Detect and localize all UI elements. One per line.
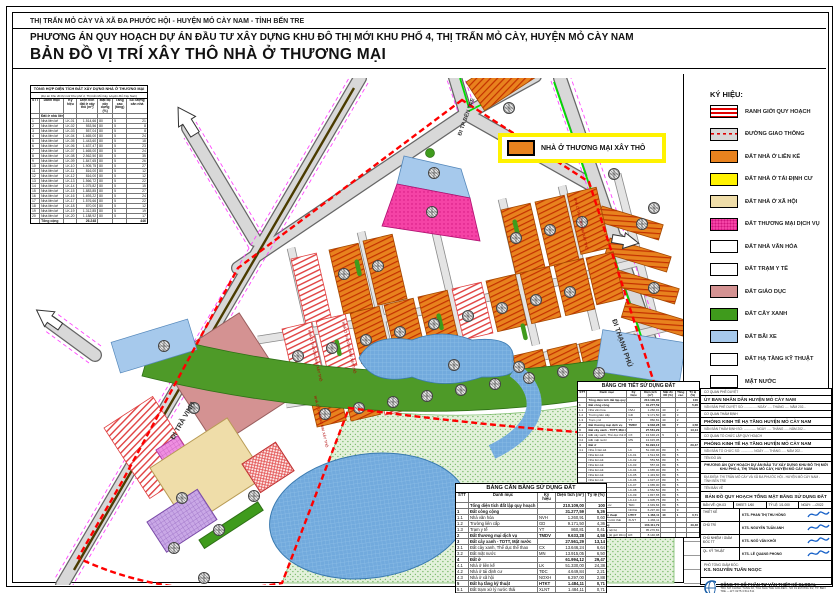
table-row: Tổng diện tích đất lập quy hoạch210.109,…: [456, 502, 606, 508]
approve-doc-line: VĂN BẢN PHÊ DUYỆT SỐ: .............. NGÀ…: [701, 404, 831, 411]
appraise-agency: PHÒNG KINH TẾ HẠ TẦNG HUYỆN MỎ CÀY NAM: [701, 418, 831, 426]
legend-item-giaoduc: ĐẤT GIÁO DỤC: [710, 285, 828, 298]
meta-date: NGÀY: ..../2022: [798, 502, 831, 508]
table-row: Nhà liên kếLK-011.514,66805: [578, 452, 699, 457]
table-row: 2Nhà liên kếLK-02553,568058: [31, 123, 147, 128]
table-row: 3Đất cây xanh - TDTT, Mặt nước27.561,291…: [578, 427, 699, 432]
project-label: TÊN ĐỒ ÁN: [701, 455, 831, 462]
table-row: STTDanh mụcKý hiệuDiện tích (m²)Mật độ X…: [578, 391, 699, 397]
org-doc-line: VĂN BẢN TỔ CHỨC SỐ: .............. NGÀY …: [701, 448, 831, 455]
table-row: 11Nhà liên kếLK-11816,0080512: [31, 168, 147, 173]
appraise-doc-line: VĂN BẢN THẨM ĐỊNH SỐ: .............. NGÀ…: [701, 426, 831, 433]
table-row: 4Đất ở61.994,1229,47: [456, 556, 606, 562]
boundary-swatch: [710, 105, 738, 118]
meta-scale: TỶ LỆ: 1/1.000: [766, 502, 799, 508]
appraise-label: CƠ QUAN THẨM ĐỊNH: [701, 411, 831, 418]
table-row: 13Nhà liên kếLK-131.566,7280522: [31, 178, 147, 183]
table-row: 5Đất hạ tầng kỹ thuậtHTKT1.484,110,71: [456, 580, 606, 586]
table-row: 1Nhà liên kếLK-011.514,6680521: [31, 118, 147, 123]
table-row: Tổng diện tích đất lập quy hoạch210.109,…: [578, 397, 699, 402]
htkt-swatch: [710, 353, 738, 366]
vanhoa-swatch: [710, 240, 738, 253]
table-row: 9Nhà liên kếLK-091.847,6580526: [31, 158, 147, 163]
road-swatch: [710, 128, 738, 141]
header-location-line: THỊ TRẤN MỎ CÀY VÀ XÃ ĐA PHƯỚC HỘI - HUY…: [13, 13, 826, 29]
tramyte-swatch: [710, 263, 738, 276]
legend-item-lienke: ĐẤT NHÀ Ở LIÊN KẾ: [710, 150, 828, 163]
table-row: 14Nhà liên kếLK-141.075,8280515: [31, 183, 147, 188]
table-row: Đất ở nhà liên kế: [31, 113, 147, 118]
table-row: Nhà liên kếLK-051.443,60805: [578, 472, 699, 477]
table-row: 1.2Trường liên cấpGD9.171,504,36: [456, 520, 606, 526]
table-row: 1Đất công cộng31.277,595,26: [456, 508, 606, 514]
header-project-line: PHƯƠNG ÁN QUY HOẠCH DỰ ÁN ĐẦU TƯ XÂY DỰN…: [13, 29, 826, 45]
table-row: 3.2Đất mặt nướcMN13.915,056,50: [456, 550, 606, 556]
table-row: 19Nhà liên kếLK-191.312,8580519: [31, 208, 147, 213]
org-label: CƠ QUAN TỔ CHỨC LẬP QUY HOẠCH: [701, 433, 831, 440]
summary-table-title: TỔNG HỢP DIỆN TÍCH ĐẤT XÂY DỰNG NHÀ Ở TH…: [31, 86, 147, 93]
table-row: 8Nhà liên kếLK-082.562,5080535: [31, 153, 147, 158]
table-row: 20Nhà liên kếLK-201.188,9280517: [31, 213, 147, 218]
signature-rows: THIẾT KẾKTS. PHAN THỊ THU HỒNGCHỦ TRÌKTS…: [701, 509, 831, 561]
table-row: 1.1Nhà văn hóaNVH1.260,91402: [578, 407, 699, 412]
tmdv-swatch: [710, 218, 738, 231]
matnuoc-swatch: [710, 375, 738, 388]
lienke-swatch: [710, 150, 738, 163]
signature-mark: [805, 535, 831, 547]
table-row: 4Đất ở61.994,1229,47: [578, 442, 699, 447]
table-row: STTDanh mụcKý hiệuDiện tích đất ở xây th…: [31, 99, 147, 113]
giaoduc-swatch: [710, 285, 738, 298]
legend-item-xahoi: ĐẤT NHÀ Ở XÃ HỘI: [710, 195, 828, 208]
table-row: 1.3Trạm y tếYT860,81402: [578, 417, 699, 422]
cayxanh-swatch: [710, 308, 738, 321]
signature-row: CHỦ TRÌKTS. NGUYỄN TUẤN ANH: [701, 522, 831, 535]
table-row: 6Nhà liên kếLK-061.637,4780523: [31, 143, 147, 148]
table-row: 12Nhà liên kếLK-12816,0080512: [31, 173, 147, 178]
xahoi-swatch: [710, 195, 738, 208]
table-row: 10Nhà liên kếLK-101.905,7580527: [31, 163, 147, 168]
table-row: 18Nhà liên kếLK-18870,0080512: [31, 203, 147, 208]
commercial-housing-swatch: [507, 140, 535, 156]
table-row: Nhà liên kếLK-02553,56805: [578, 457, 699, 462]
table-row: 16Nhà liên kếLK-161.693,2280524: [31, 193, 147, 198]
deputy-row: PHÓ TỔNG GIÁM ĐỐC: KS. NGUYỄN TUẤN NGỌC: [701, 561, 831, 578]
legend-item-tramyte: ĐẤT TRẠM Y TẾ: [710, 263, 828, 276]
legend-item-vanhoa: ĐẤT NHÀ VĂN HÓA: [710, 240, 828, 253]
legend-items: RANH GIỚI QUY HOẠCHĐƯỜNG GIAO THÔNGĐẤT N…: [684, 105, 828, 388]
table-row: 4.3Nhà ở xã hộiNOXH6.297,002,88: [456, 574, 606, 580]
balance-table-title: BẢNG CÂN BẰNG SỬ DỤNG ĐẤT: [456, 484, 606, 493]
table-row: 4Nhà liên kếLK-041.665,0080524: [31, 133, 147, 138]
project-name: PHƯƠNG ÁN QUY HOẠCH DỰ ÁN ĐẦU TƯ XÂY DỰN…: [701, 462, 831, 474]
pond-upper: [359, 334, 515, 384]
meta-sheet: SHEET: 1/60: [733, 502, 766, 508]
table-row: 4.1Nhà ở liên kếLK51.330,0024,38: [456, 562, 606, 568]
table-row: Tổng cộng26.248446: [31, 218, 147, 223]
planning-map-sheet: THỊ TRẤN MỎ CÀY VÀ XÃ ĐA PHƯỚC HỘI - HUY…: [0, 0, 839, 593]
sheet-header: THỊ TRẤN MỎ CÀY VÀ XÃ ĐA PHƯỚC HỘI - HUY…: [13, 13, 826, 69]
signature-mark: [805, 509, 831, 521]
drawing-name: BẢN ĐỒ QUY HOẠCH TỔNG MẶT BẰNG SỬ DỤNG Đ…: [701, 492, 831, 502]
note-label: NHÀ Ở THƯƠNG MẠI XÂY THÔ: [541, 145, 645, 152]
table-row: 17Nhà liên kếLK-171.576,6680522: [31, 198, 147, 203]
table-row: 4.1Nhà ở liên kếLK51.330,00805: [578, 447, 699, 452]
table-row: 3Nhà liên kếLK-03557,048058: [31, 128, 147, 133]
table-row: 3Đất cây xanh - TDTT, Mặt nước27.561,291…: [456, 538, 606, 544]
signature-mark: [805, 522, 831, 534]
table-row: Nhà liên kếLK-061.637,47805: [578, 477, 699, 482]
table-row: 3.1Đất cây xanh, Thể dục thể thaoCX13.64…: [456, 544, 606, 550]
org-agency: PHÒNG KINH TẾ HẠ TẦNG HUYỆN MỎ CÀY NAM: [701, 440, 831, 448]
table-row: Nhà liên kếLK-041.665,00805: [578, 467, 699, 472]
drawing-meta-row: BẢN VẼ: QH-03 SHEET: 1/60 TỶ LỆ: 1/1.000…: [701, 502, 831, 509]
table-row: 3.1Đất cây xanh, Thể dục thể thaoCX13.64…: [578, 432, 699, 437]
table-row: Nhà liên kếLK-03557,04805: [578, 462, 699, 467]
table-row: 1.2Trường liên cấpGD9.171,50403: [578, 412, 699, 417]
legend-item-matnuoc: MẶT NƯỚC: [710, 375, 828, 388]
deputy-name: KS. NGUYỄN TUẤN NGỌC: [704, 567, 762, 572]
signature-row: CHỦ NHIỆM / GIÁM ĐỐC TTKTS. NGÔ VĂN KHỞI: [701, 535, 831, 548]
table-row: 3.2Đất mặt nướcMN13.915,05: [578, 437, 699, 442]
balance-table: BẢNG CÂN BẰNG SỬ DỤNG ĐẤT STTDanh mụcKý …: [455, 483, 607, 593]
table-row: 4.2Nhà ở tái định cưTĐC4.649,842,21: [456, 568, 606, 574]
legend-item-tmdv: ĐẤT THƯƠNG MẠI DỊCH VỤ: [710, 218, 828, 231]
table-row: 1.3Trạm y tếYT860,810,41: [456, 526, 606, 532]
legend-title: KÝ HIỆU:: [710, 90, 828, 99]
table-row: 5Nhà liên kếLK-051.443,6080518: [31, 138, 147, 143]
signature-mark: [805, 548, 831, 560]
project-location: ĐỊA ĐIỂM: THỊ TRẤN MỎ CÀY VÀ XÃ ĐA PHƯỚC…: [701, 474, 831, 485]
title-block: CƠ QUAN PHÊ DUYỆT ỦY BAN NHÂN DÂN HUYỆN …: [700, 388, 832, 585]
legend-item-baixe: ĐẤT BÃI XE: [710, 330, 828, 343]
table-row: 1Đất công cộng31.277,595,26: [578, 402, 699, 407]
table-row: 15Nhà liên kếLK-151.883,8580527: [31, 188, 147, 193]
summary-table: TỔNG HỢP DIỆN TÍCH ĐẤT XÂY DỰNG NHÀ Ở TH…: [30, 85, 148, 224]
table-row: STTDanh mụcKý hiệuDiện tích (m²)Tỷ lệ (%…: [456, 493, 606, 502]
approve-label: CƠ QUAN PHÊ DUYỆT: [701, 389, 831, 396]
table-row: 2Đất thương mại dịch vụTMDV9.633,286074,…: [578, 422, 699, 427]
page-title: BẢN ĐỒ VỊ TRÍ XÂY THÔ NHÀ Ở THƯƠNG MẠI: [13, 45, 826, 69]
map-note-box: NHÀ Ở THƯƠNG MẠI XÂY THÔ: [498, 133, 666, 163]
company-address: TRỤ SỞ CHÍNH: TẦNG 02, TÒA NHÀ THE GOLDE…: [720, 587, 828, 593]
detail-table-title: BẢNG CHI TIẾT SỬ DỤNG ĐẤT: [578, 382, 699, 391]
legend-item-tdc: ĐẤT NHÀ Ở TÁI ĐỊNH CƯ: [710, 173, 828, 186]
table-row: 7Nhà liên kếLK-071.665,0080524: [31, 148, 147, 153]
meta-drawing-no: BẢN VẼ: QH-03: [701, 502, 733, 508]
drawing-label: TÊN BẢN VẼ: [701, 485, 831, 492]
table-row: 1.1Nhà văn hóaNVH1.260,910,60: [456, 514, 606, 520]
company-row: CÔNG TY CỔ PHẦN TƯ VẤN THIẾT KẾ GLOBAL T…: [701, 578, 831, 593]
legend-item-htkt: ĐẤT HẠ TẦNG KỸ THUẬT: [710, 353, 828, 366]
company-logo: [704, 580, 716, 593]
approve-agency: ỦY BAN NHÂN DÂN HUYỆN MỎ CÀY NAM: [701, 396, 831, 404]
table-row: 2Đất thương mại dịch vụTMDV9.633,284,58: [456, 532, 606, 538]
table-row: 5.1Đất trạm xử lý nước thảiXLNT1.484,110…: [456, 586, 606, 592]
signature-row: QL. KỸ THUẬTKTS. LÊ QUANG PHONG: [701, 548, 831, 561]
baixe-swatch: [710, 330, 738, 343]
tdc-swatch: [710, 173, 738, 186]
legend-panel: KÝ HIỆU: RANH GIỚI QUY HOẠCHĐƯỜNG GIAO T…: [683, 74, 828, 388]
signature-row: THIẾT KẾKTS. PHAN THỊ THU HỒNG: [701, 509, 831, 522]
legend-item-road: ĐƯỜNG GIAO THÔNG: [710, 128, 828, 141]
legend-item-cayxanh: ĐẤT CÂY XANH: [710, 308, 828, 321]
legend-item-boundary: RANH GIỚI QUY HOẠCH: [710, 105, 828, 118]
